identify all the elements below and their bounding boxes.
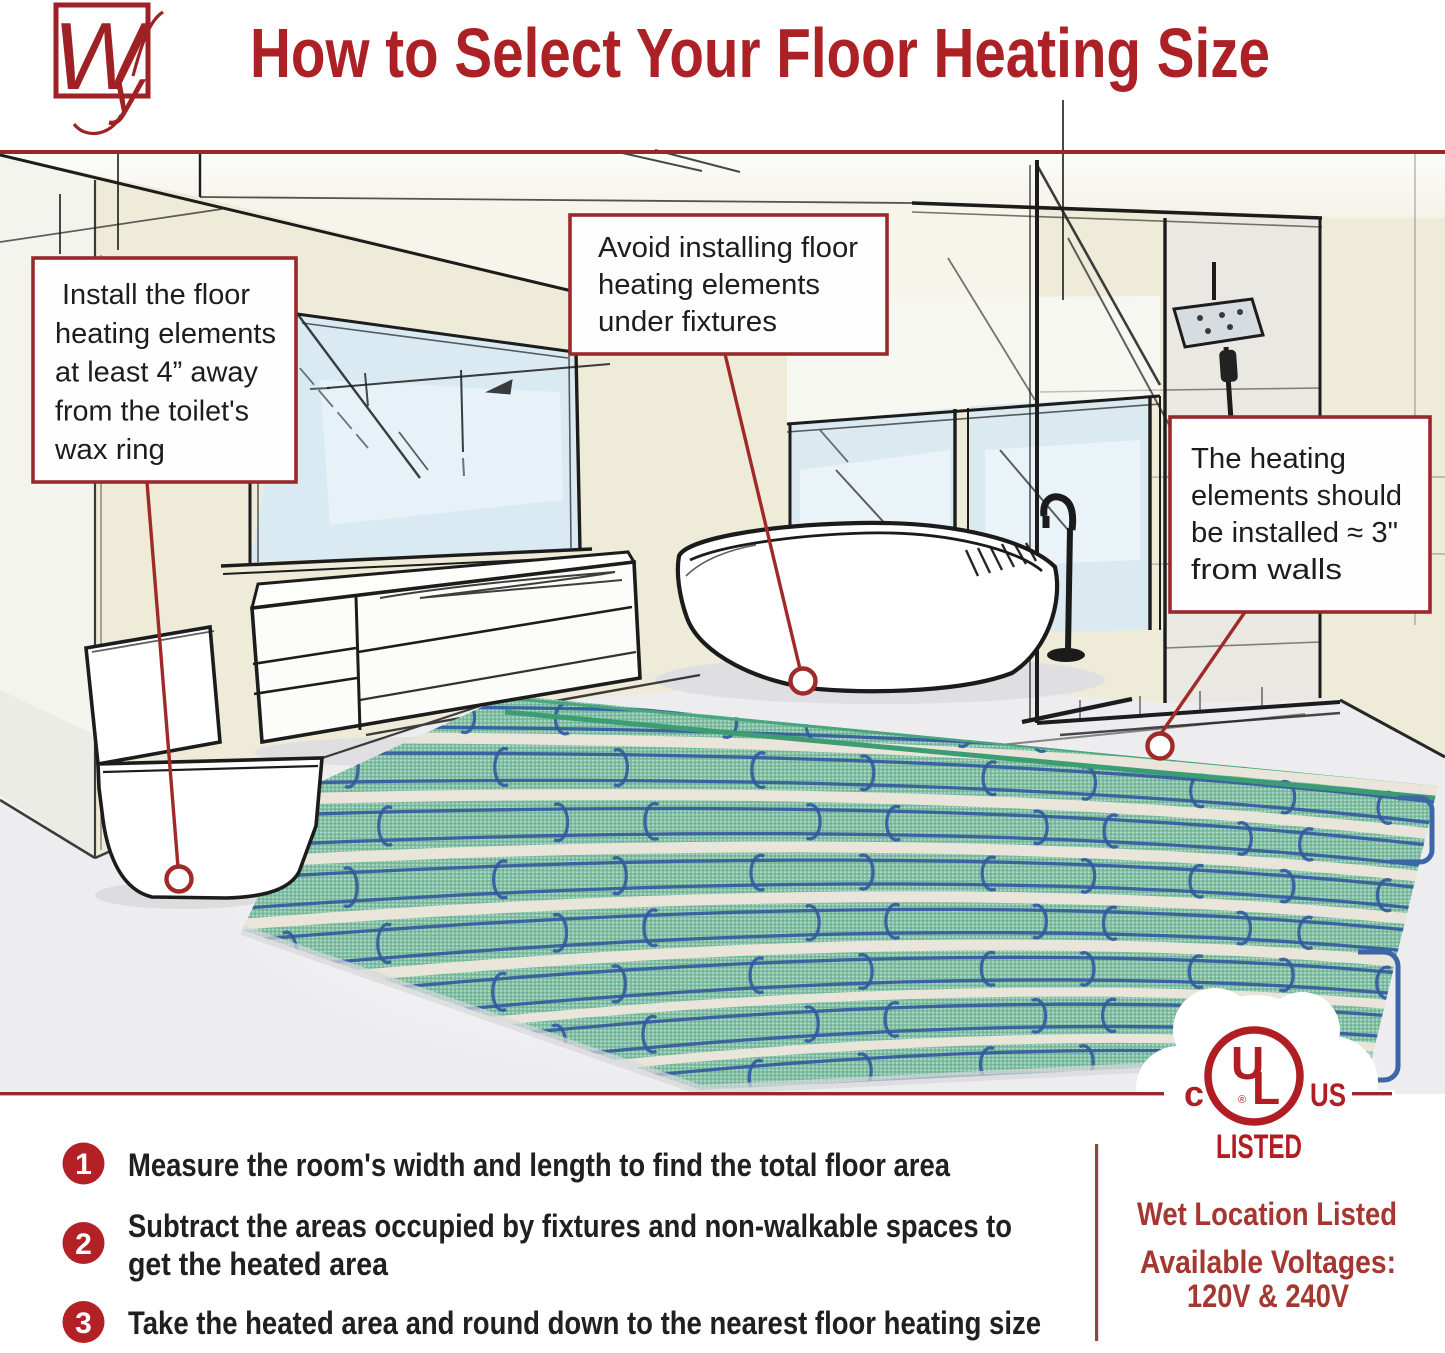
svg-text:Available Voltages:: Available Voltages: bbox=[1140, 1244, 1396, 1280]
svg-text:under fixtures: under fixtures bbox=[598, 306, 777, 338]
svg-text:®: ® bbox=[1238, 1094, 1246, 1106]
svg-text:How to Select Your Floor Heati: How to Select Your Floor Heating Size bbox=[250, 14, 1270, 92]
svg-text:US: US bbox=[1310, 1077, 1346, 1113]
svg-text:get the heated area: get the heated area bbox=[128, 1246, 388, 1282]
svg-text:Install the floor: Install the floor bbox=[62, 279, 250, 311]
svg-text:c: c bbox=[1184, 1073, 1204, 1114]
svg-text:Wet Location Listed: Wet Location Listed bbox=[1137, 1196, 1397, 1232]
svg-text:heating elements: heating elements bbox=[55, 318, 276, 350]
svg-text:1: 1 bbox=[75, 1148, 92, 1181]
svg-text:Take the heated area and round: Take the heated area and round down to t… bbox=[128, 1305, 1041, 1341]
svg-text:3: 3 bbox=[75, 1307, 92, 1340]
svg-text:y: y bbox=[108, 57, 147, 126]
svg-text:from the toilet's: from the toilet's bbox=[55, 395, 249, 427]
svg-text:2: 2 bbox=[75, 1228, 92, 1261]
svg-text:from walls: from walls bbox=[1191, 554, 1342, 586]
svg-text:wax ring: wax ring bbox=[54, 434, 165, 466]
svg-text:LISTED: LISTED bbox=[1216, 1128, 1302, 1166]
svg-text:Measure the room's width and l: Measure the room's width and length to f… bbox=[128, 1147, 950, 1183]
svg-text:L: L bbox=[1252, 1062, 1280, 1114]
svg-text:120V & 240V: 120V & 240V bbox=[1187, 1278, 1350, 1314]
svg-text:heating elements: heating elements bbox=[598, 269, 820, 301]
svg-text:elements should: elements should bbox=[1191, 480, 1402, 512]
svg-text:The heating: The heating bbox=[1191, 443, 1346, 475]
svg-text:be installed ≈ 3": be installed ≈ 3" bbox=[1191, 517, 1398, 549]
svg-text:Avoid installing floor: Avoid installing floor bbox=[598, 232, 858, 264]
svg-text:at least 4” away: at least 4” away bbox=[55, 357, 258, 389]
svg-text:Subtract the areas occupied by: Subtract the areas occupied by fixtures … bbox=[128, 1208, 1012, 1244]
